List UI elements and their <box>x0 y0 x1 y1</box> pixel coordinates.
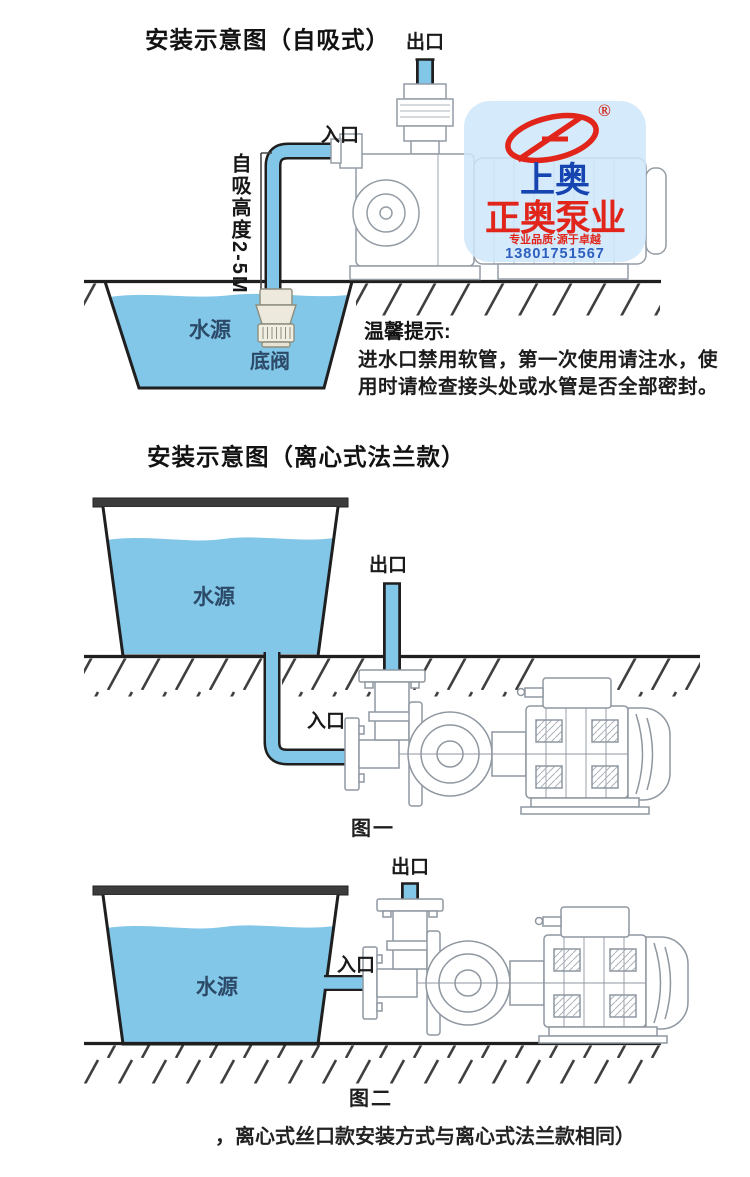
d1-water-source-label: 水源 <box>189 319 231 343</box>
pump-installation-guide: 安装示意图（自吸式） 出口 入口 自吸高度2-5M 水源 底阀 温馨提示: 进水… <box>0 0 750 1177</box>
centrifugal-pump-fig2 <box>363 899 688 1043</box>
d3-water-source-label: 水源 <box>196 976 238 1000</box>
tips-line-2: 用时请检查接头处或水管是否全部密封。 <box>358 376 718 398</box>
d3-outlet-label: 出口 <box>391 857 429 879</box>
registered-trademark: ® <box>598 101 611 121</box>
d2-inlet-label: 入口 <box>307 711 345 733</box>
brand-ellipse-logo-icon <box>502 112 602 164</box>
d1-outlet-label: 出口 <box>406 32 444 54</box>
foot-valve <box>256 289 296 347</box>
d2-outlet-label: 出口 <box>369 555 407 577</box>
bucket-tank-fig2 <box>93 886 348 1044</box>
brand-badge: ® 上奥 正奥泵业 专业品质·源于卓越 13801751567 <box>464 101 646 262</box>
brand-name-top: 上奥 <box>464 163 646 198</box>
bucket-tank-fig1 <box>93 498 348 656</box>
suction-pipe-1 <box>273 151 352 291</box>
outlet-pipe-2 <box>383 584 401 679</box>
d2-water-source-label: 水源 <box>193 586 235 610</box>
tips-line-1: 进水口禁用软管，第一次使用请注水，使 <box>358 349 718 371</box>
diagram1-title: 安装示意图（自吸式） <box>145 27 390 54</box>
figure1-caption: 图一 <box>351 818 395 841</box>
figure2-caption: 图二 <box>349 1088 393 1111</box>
brand-name-main: 正奥泵业 <box>464 200 646 236</box>
foot-valve-label: 底阀 <box>250 351 290 374</box>
brand-slogan: 专业品质·源于卓越 <box>464 235 646 246</box>
diagram2-title: 安装示意图（离心式法兰款） <box>147 444 466 471</box>
tips-heading: 温馨提示: <box>364 321 451 344</box>
install-note: ，离心式丝口款安装方式与离心式法兰款相同） <box>215 1126 635 1149</box>
brand-phone: 13801751567 <box>464 247 646 262</box>
d3-inlet-label: 入口 <box>337 955 375 977</box>
suction-height-label: 自吸高度2-5M <box>227 153 250 333</box>
d1-inlet-label: 入口 <box>321 125 359 147</box>
